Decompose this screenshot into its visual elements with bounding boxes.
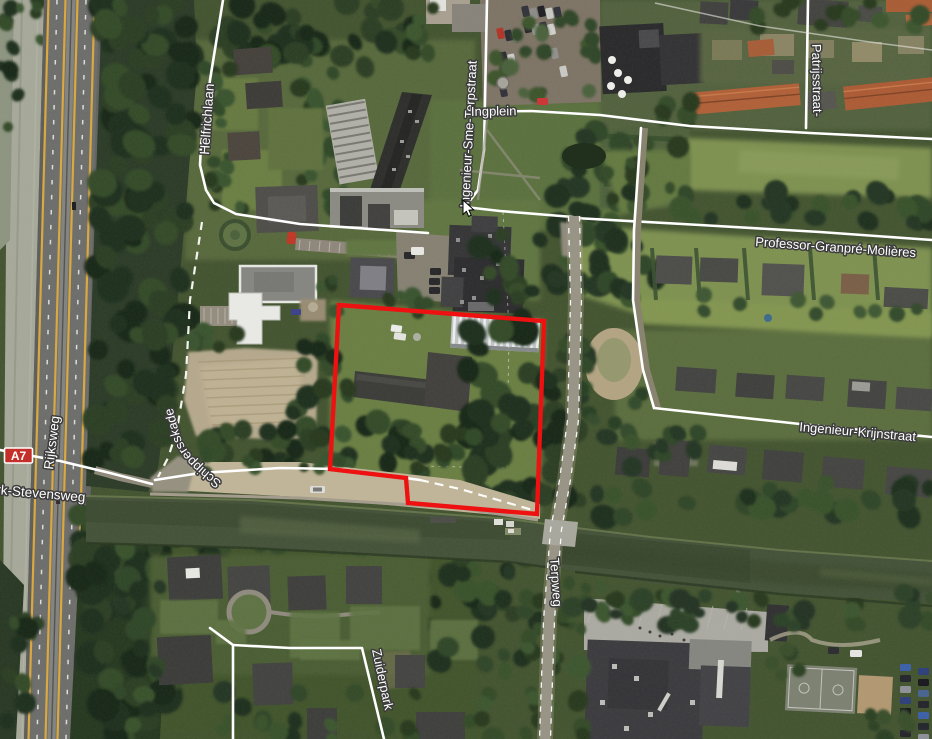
svg-text:A7: A7 — [11, 449, 27, 463]
svg-text:Ingplein: Ingplein — [471, 103, 517, 119]
svg-text:Patrijsstraat-: Patrijsstraat- — [809, 44, 825, 117]
